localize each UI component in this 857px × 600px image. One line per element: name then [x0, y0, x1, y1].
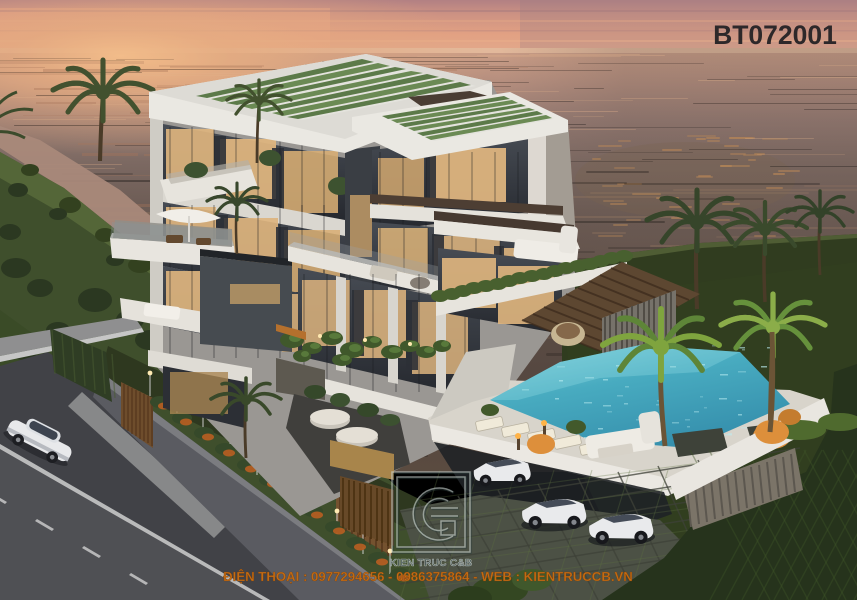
svg-text:ĐIỆN THOẠI : 0977294656 - 0986: ĐIỆN THOẠI : 0977294656 - 0986375864 - W…	[223, 569, 633, 584]
svg-text:BT072001: BT072001	[713, 20, 837, 50]
svg-text:KIEN TRUC C&B: KIEN TRUC C&B	[390, 558, 473, 569]
